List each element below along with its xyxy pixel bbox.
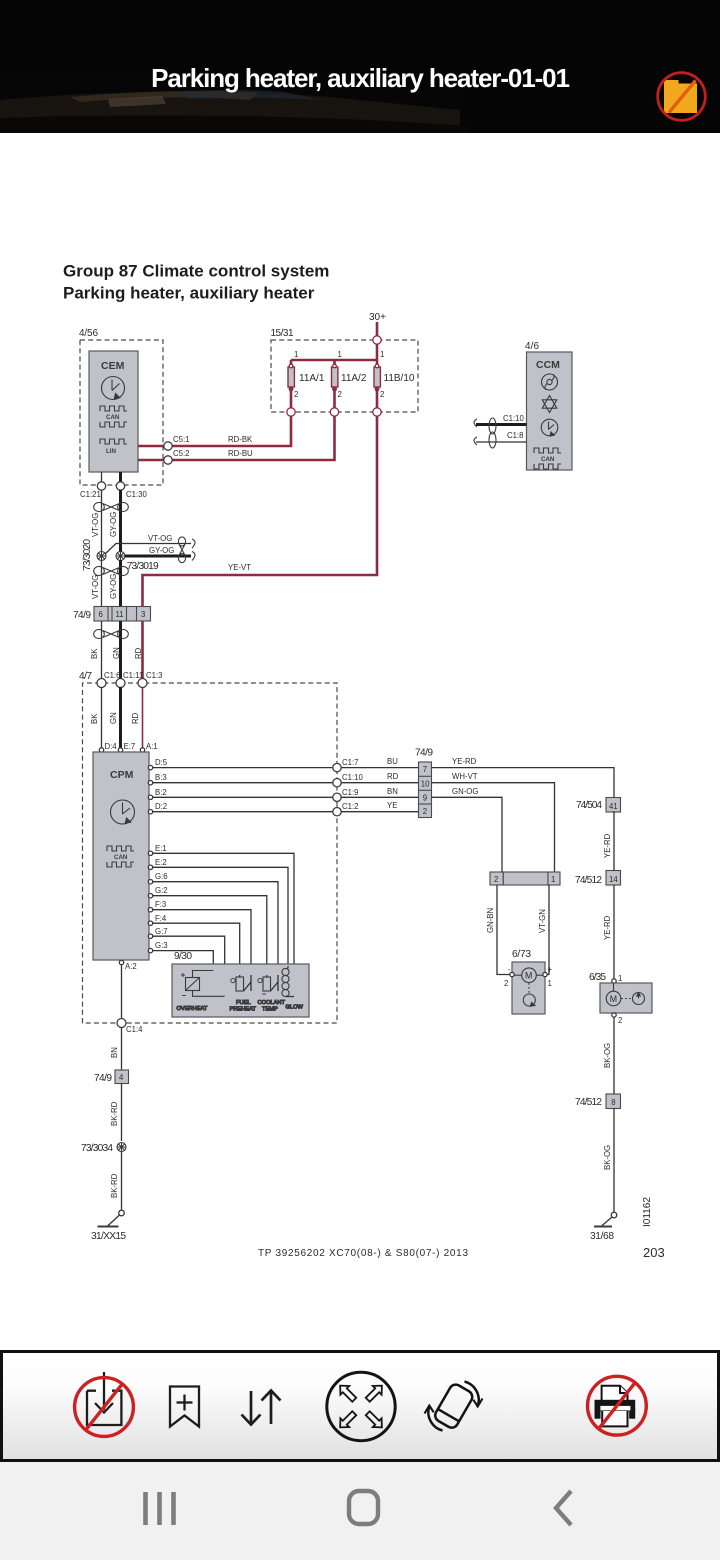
svg-text:Group 87 Climate control syste: Group 87 Climate control system (63, 262, 329, 281)
svg-text:FUEL: FUEL (236, 1000, 251, 1006)
svg-text:F:3: F:3 (155, 900, 166, 909)
svg-text:C1:10: C1:10 (342, 773, 363, 782)
svg-text:CEM: CEM (101, 360, 125, 372)
svg-text:VT-OG: VT-OG (91, 575, 100, 599)
svg-text:I01162: I01162 (642, 1197, 653, 1227)
svg-text:G:2: G:2 (155, 886, 168, 895)
svg-text:4: 4 (119, 1073, 124, 1082)
svg-text:D:5: D:5 (155, 758, 168, 767)
svg-text:2: 2 (294, 390, 298, 399)
svg-text:C1:8: C1:8 (507, 431, 523, 440)
svg-text:BK-RD: BK-RD (110, 1173, 119, 1198)
svg-text:CAN: CAN (541, 456, 555, 463)
svg-text:14: 14 (609, 875, 618, 884)
svg-text:C1:9: C1:9 (342, 788, 358, 797)
svg-text:6/35: 6/35 (589, 972, 606, 983)
svg-text:2: 2 (423, 807, 427, 816)
svg-text:74/9: 74/9 (73, 610, 91, 621)
svg-text:1: 1 (551, 875, 555, 884)
svg-text:4/6: 4/6 (525, 341, 539, 352)
svg-text:4/7: 4/7 (79, 671, 92, 682)
svg-text:4/56: 4/56 (79, 328, 98, 339)
svg-text:6: 6 (99, 610, 103, 619)
svg-text:11B/10: 11B/10 (384, 373, 415, 384)
svg-text:GN-OG: GN-OG (452, 787, 478, 796)
svg-text:GY-OG: GY-OG (109, 512, 118, 537)
svg-text:9/30: 9/30 (174, 951, 192, 962)
svg-text:203: 203 (643, 1245, 665, 1260)
svg-text:YE-VT: YE-VT (228, 563, 251, 572)
svg-text:YE-RD: YE-RD (603, 915, 612, 940)
svg-text:COOLANT: COOLANT (258, 1000, 286, 1006)
svg-text:VT-GN: VT-GN (538, 909, 547, 933)
svg-text:3: 3 (141, 610, 145, 619)
svg-text:C5:2: C5:2 (173, 449, 189, 458)
svg-text:CAN: CAN (114, 854, 128, 861)
svg-text:M: M (525, 971, 532, 981)
svg-text:15/31: 15/31 (271, 328, 294, 339)
svg-text:BK-OG: BK-OG (603, 1145, 612, 1170)
svg-text:TEMP: TEMP (262, 1007, 278, 1013)
svg-text:C1:4: C1:4 (126, 1025, 143, 1034)
svg-text:C1:10: C1:10 (503, 414, 524, 423)
svg-text:GN: GN (109, 712, 118, 724)
svg-text:31/68: 31/68 (590, 1231, 614, 1242)
svg-text:RD-BK: RD-BK (228, 435, 253, 444)
svg-text:C1:3: C1:3 (146, 671, 162, 680)
svg-text:+: + (548, 965, 553, 974)
svg-text:BN: BN (110, 1047, 119, 1058)
svg-text:D:2: D:2 (155, 802, 167, 811)
svg-text:TP 39256202 XC70(08-) & S80(07: TP 39256202 XC70(08-) & S80(07-) 2013 (258, 1248, 468, 1259)
svg-text:LIN: LIN (106, 448, 116, 455)
svg-text:74/9: 74/9 (94, 1073, 112, 1084)
svg-text:B:3: B:3 (155, 773, 167, 782)
svg-text:YE: YE (387, 801, 397, 810)
svg-text:PREHEAT: PREHEAT (230, 1007, 257, 1013)
svg-text:GN: GN (112, 647, 121, 659)
svg-text:VT-OG: VT-OG (91, 513, 100, 537)
svg-text:Parking heater, auxiliary heat: Parking heater, auxiliary heater (63, 284, 315, 303)
svg-text:1: 1 (548, 979, 552, 988)
svg-text:9: 9 (423, 793, 427, 802)
svg-text:41: 41 (609, 802, 618, 811)
svg-text:-: - (508, 965, 511, 974)
svg-text:CAN: CAN (106, 414, 120, 421)
svg-text:BK: BK (90, 648, 99, 659)
svg-text:E:1: E:1 (155, 844, 167, 853)
svg-text:BN: BN (387, 787, 398, 796)
svg-text:2: 2 (338, 390, 342, 399)
svg-text:G:3: G:3 (155, 941, 168, 950)
svg-text:GY-OG: GY-OG (109, 574, 118, 599)
svg-text:RD: RD (131, 712, 140, 724)
svg-text:1: 1 (380, 350, 384, 359)
svg-text:74/512: 74/512 (575, 875, 602, 886)
svg-text:A:1: A:1 (146, 742, 158, 751)
svg-text:C5:1: C5:1 (173, 435, 189, 444)
svg-text:F:4: F:4 (155, 914, 167, 923)
svg-text:BK-RD: BK-RD (110, 1101, 119, 1126)
svg-text:C1:11: C1:11 (123, 671, 143, 680)
svg-text:RD: RD (134, 647, 143, 659)
svg-text:CPM: CPM (110, 769, 134, 781)
svg-text:10: 10 (421, 779, 430, 788)
svg-text:YE-RD: YE-RD (452, 757, 477, 766)
svg-text:B:2: B:2 (155, 788, 167, 797)
svg-text:11A/1: 11A/1 (299, 373, 325, 384)
svg-text:BK-OG: BK-OG (603, 1043, 612, 1068)
svg-text:GLOW: GLOW (286, 1005, 304, 1011)
svg-text:74/9: 74/9 (415, 748, 433, 759)
svg-text:A:2: A:2 (125, 962, 137, 971)
svg-text:GY-OG: GY-OG (149, 546, 174, 555)
svg-text:C1:7: C1:7 (342, 758, 358, 767)
svg-text:74/512: 74/512 (575, 1097, 602, 1108)
svg-text:YE-RD: YE-RD (603, 833, 612, 858)
svg-text:RD: RD (387, 772, 399, 781)
svg-text:8: 8 (611, 1098, 615, 1107)
svg-text:G:6: G:6 (155, 872, 168, 881)
svg-text:73/3034: 73/3034 (81, 1143, 113, 1154)
svg-text:6/73: 6/73 (512, 949, 531, 960)
svg-text:C1:30: C1:30 (126, 490, 147, 499)
svg-text:1: 1 (618, 974, 622, 983)
svg-text:30+: 30+ (369, 312, 386, 323)
svg-text:WH-VT: WH-VT (452, 772, 478, 781)
svg-text:C1:21: C1:21 (80, 490, 101, 499)
svg-text:1: 1 (294, 350, 298, 359)
svg-text:74/504: 74/504 (576, 800, 602, 811)
svg-text:VT-OG: VT-OG (148, 534, 172, 543)
svg-text:OVERHEAT: OVERHEAT (177, 1006, 208, 1012)
svg-text:2: 2 (618, 1016, 622, 1025)
svg-text:2: 2 (494, 875, 498, 884)
svg-text:31/XX15: 31/XX15 (91, 1231, 126, 1242)
svg-text:11: 11 (116, 610, 124, 619)
svg-text:RD-BU: RD-BU (228, 449, 253, 458)
svg-text:G:7: G:7 (155, 927, 168, 936)
svg-text:C1:6: C1:6 (104, 671, 120, 680)
svg-text:BU: BU (387, 757, 398, 766)
svg-text:73/3019: 73/3019 (127, 561, 159, 572)
svg-text:BK: BK (90, 713, 99, 724)
svg-text:7: 7 (423, 765, 427, 774)
svg-text:11A/2: 11A/2 (341, 373, 367, 384)
svg-text:E:2: E:2 (155, 858, 167, 867)
svg-text:2: 2 (504, 979, 508, 988)
svg-text:2: 2 (380, 390, 384, 399)
svg-text:D:4: D:4 (105, 742, 118, 751)
svg-text:GN-BN: GN-BN (486, 908, 495, 933)
svg-text:M: M (610, 994, 617, 1004)
svg-text:73/3020: 73/3020 (82, 539, 93, 571)
svg-text:1: 1 (338, 350, 342, 359)
svg-text:CCM: CCM (536, 359, 560, 371)
svg-text:E:7: E:7 (124, 742, 136, 751)
svg-text:C1:2: C1:2 (342, 802, 358, 811)
